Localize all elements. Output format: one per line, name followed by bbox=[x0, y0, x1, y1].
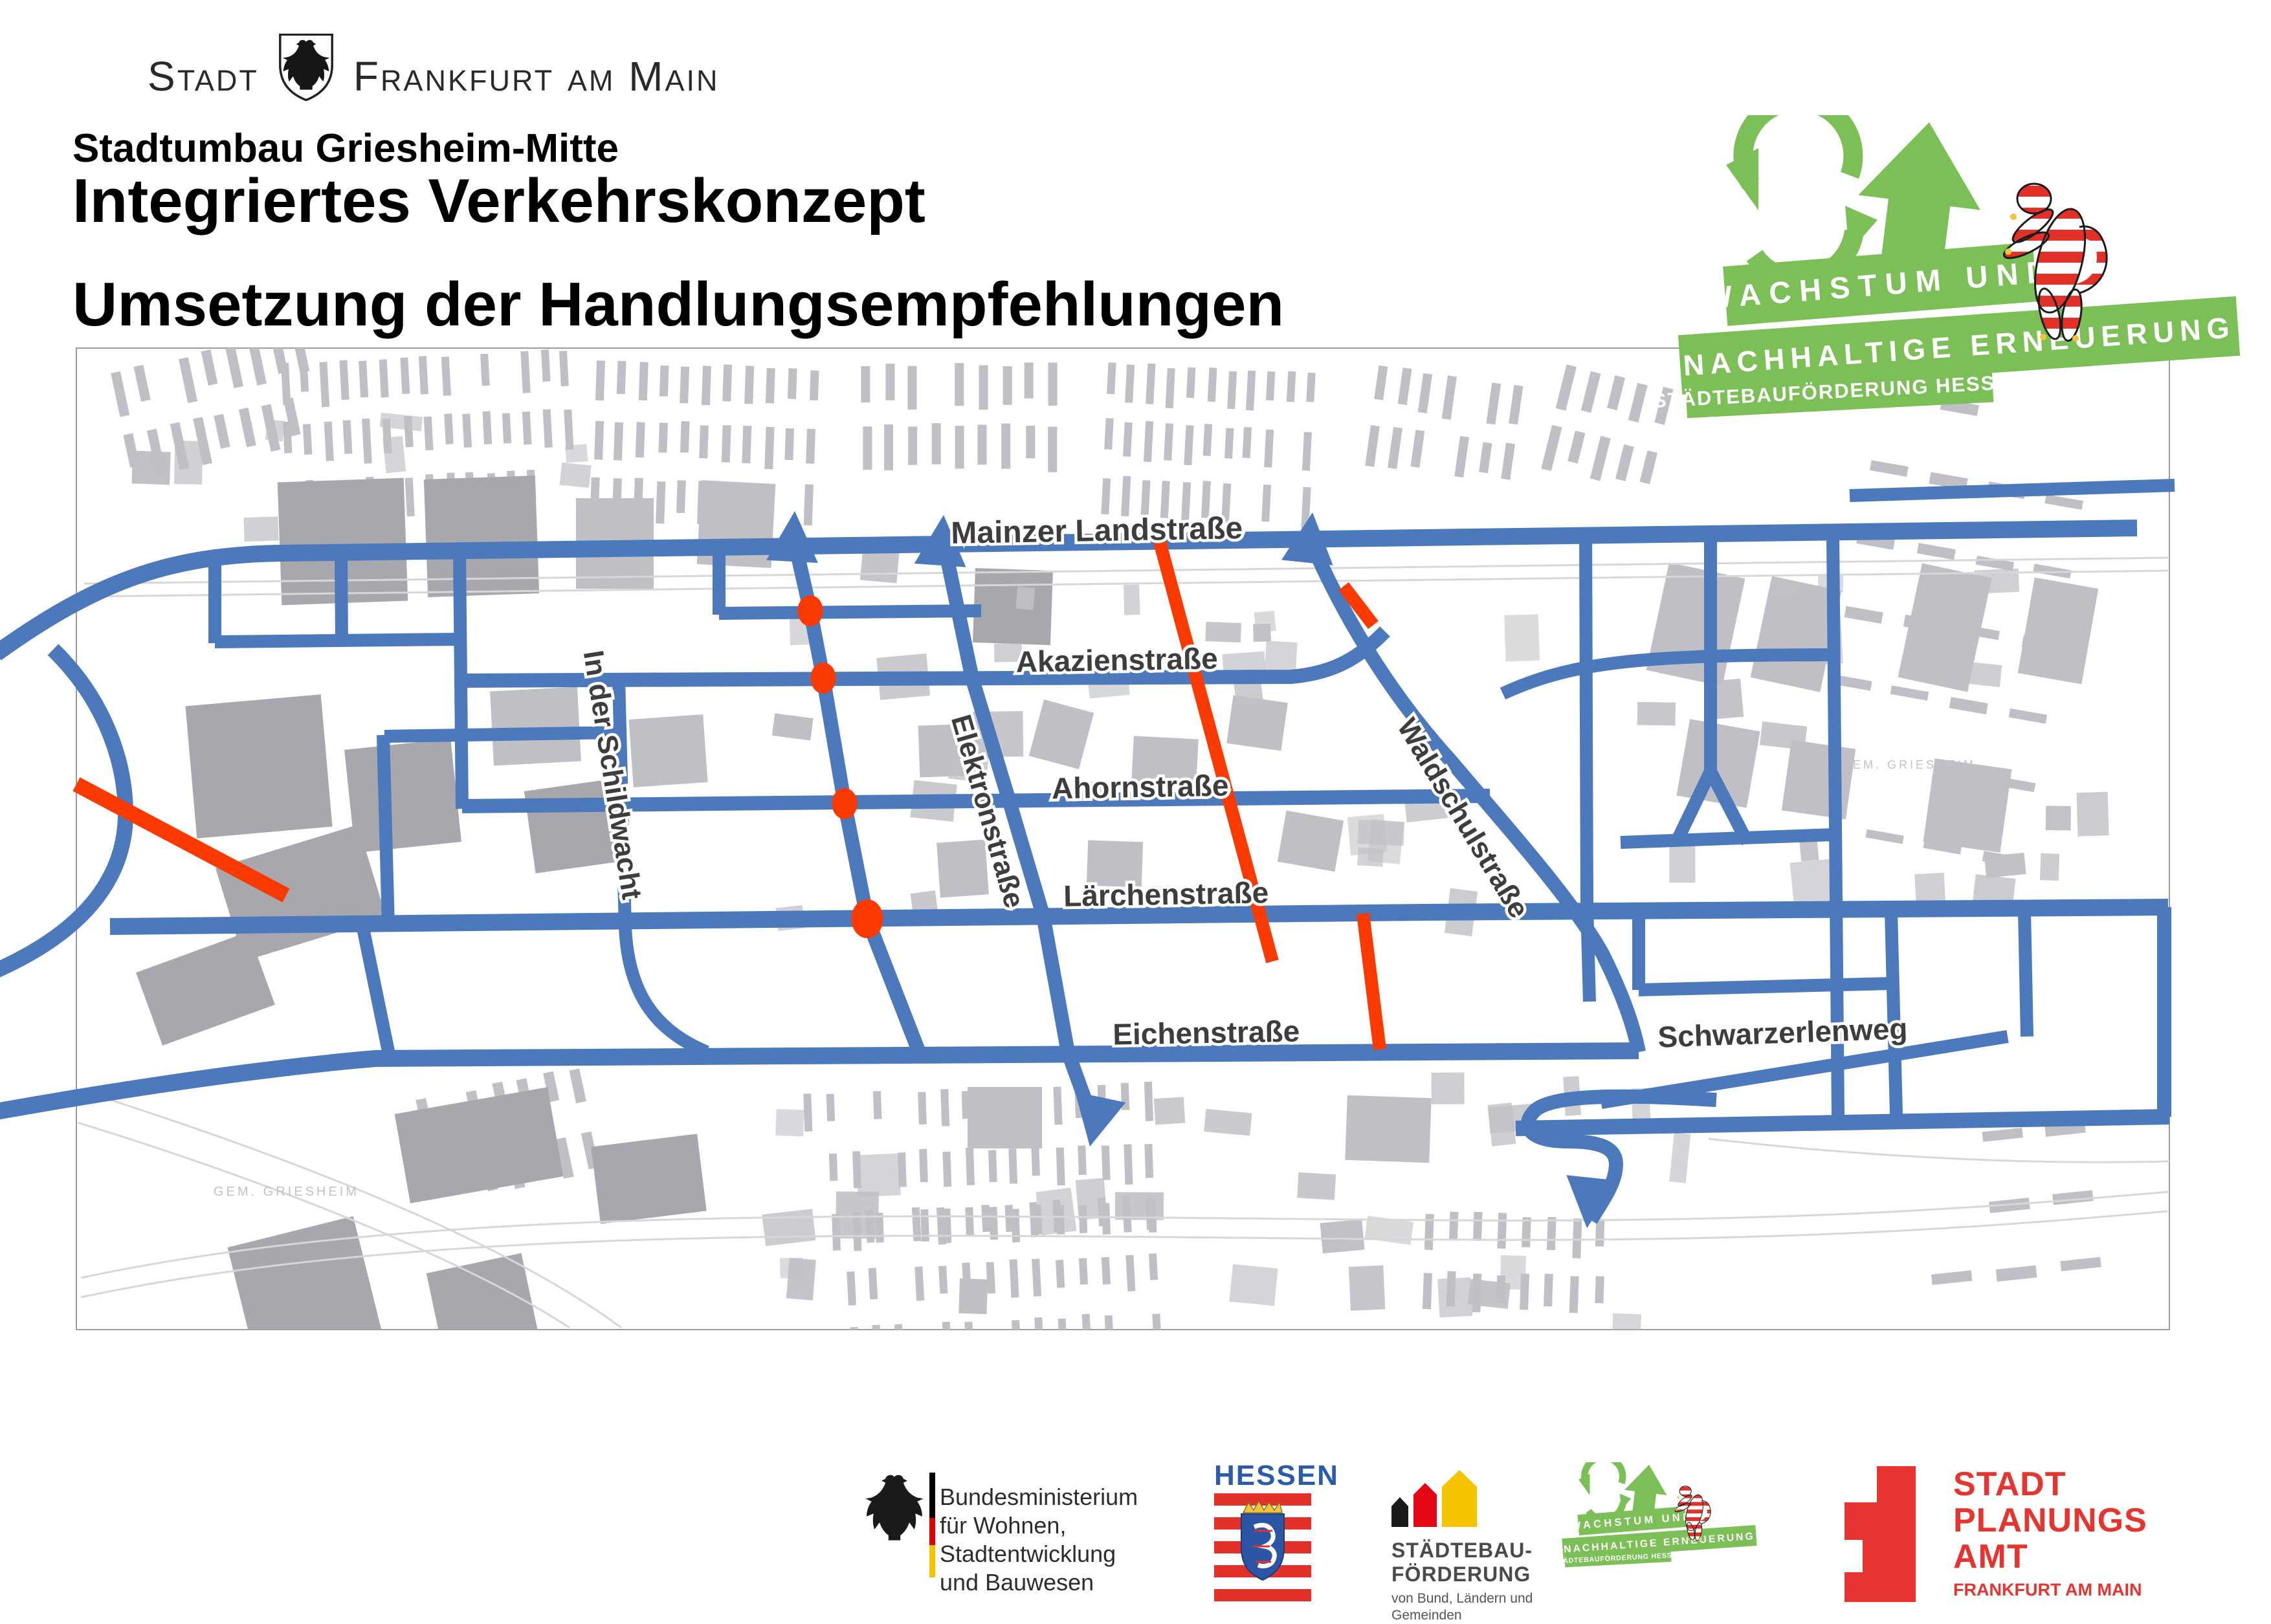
street-route bbox=[1639, 983, 1891, 990]
frankfurt-eagle-shield-icon bbox=[268, 34, 344, 101]
street-label: Mainzer Landstraße bbox=[951, 511, 1243, 551]
spa-text: STADT PLANUNGS AMT bbox=[1953, 1466, 2147, 1575]
recycle-arrows-icon bbox=[1726, 115, 1878, 279]
street-label: Lärchenstraße bbox=[1063, 875, 1269, 913]
street-route bbox=[1587, 908, 1590, 1002]
basemap-label: GEM. GRIESHEIM bbox=[214, 1185, 359, 1199]
poster-title2: Umsetzung der Handlungsempfehlungen bbox=[72, 269, 1284, 340]
spa-subtext: FRANKFURT AM MAIN bbox=[1953, 1580, 2142, 1600]
logo-staedtebaufoerderung: STÄDTEBAU- FÖRDERUNG von Bund, Ländern u… bbox=[1391, 1469, 1560, 1618]
hessen-wordmark: HESSEN bbox=[1214, 1460, 1311, 1492]
street-route bbox=[719, 611, 981, 613]
poster-subtitle: Stadtumbau Griesheim-Mitte bbox=[72, 126, 619, 171]
logo-bundesministerium: Bundesministerium für Wohnen, Stadtentwi… bbox=[865, 1469, 1201, 1605]
street-route bbox=[2024, 911, 2027, 1037]
flag-gold bbox=[929, 1545, 935, 1577]
stb-subtext: von Bund, Ländern und Gemeinden bbox=[1391, 1590, 1533, 1624]
three-houses-icon bbox=[1391, 1469, 1482, 1527]
city-logo-stadt: Stadt bbox=[148, 56, 259, 97]
street-label: Eichenstraße bbox=[1113, 1014, 1300, 1051]
measure-dot bbox=[797, 595, 823, 626]
city-logo: Stadt Frankfurt am Main bbox=[148, 34, 720, 97]
flag-black bbox=[929, 1473, 935, 1518]
poster-title: Integriertes Verkehrskonzept bbox=[72, 166, 925, 237]
street-label: Ahornstraße bbox=[1052, 769, 1229, 806]
measure-dot bbox=[832, 788, 857, 819]
stb-text: STÄDTEBAU- FÖRDERUNG bbox=[1391, 1539, 1533, 1586]
spa-glyph-icon bbox=[1824, 1466, 1931, 1602]
growth-logo-large: WACHSTUM UND NACHHALTIGE ERNEUERUNG STÄD… bbox=[1654, 115, 2268, 419]
bm-text: Bundesministerium für Wohnen, Stadtentwi… bbox=[940, 1483, 1201, 1597]
street-route bbox=[383, 735, 388, 925]
growth-logo-small bbox=[1553, 1462, 1767, 1568]
street-route bbox=[1621, 835, 1833, 842]
hessen-coat-of-arms-icon bbox=[1214, 1493, 1311, 1602]
street-route bbox=[1586, 529, 1587, 908]
measure-dot bbox=[810, 663, 836, 694]
logo-stadtplanungsamt: STADT PLANUNGS AMT FRANKFURT AM MAIN bbox=[1824, 1466, 2160, 1608]
street-route bbox=[215, 639, 461, 642]
basemap-label: GEM. GRIESHEIM bbox=[1841, 758, 1976, 771]
street-route bbox=[341, 554, 342, 643]
city-logo-frankfurt: Frankfurt am Main bbox=[353, 56, 720, 97]
flag-red bbox=[929, 1518, 935, 1545]
federal-eagle-icon bbox=[865, 1473, 924, 1542]
street-label: Akazienstraße bbox=[1015, 641, 1218, 678]
footer-logos: Bundesministerium für Wohnen, Stadtentwi… bbox=[0, 1456, 2271, 1605]
street-route bbox=[384, 732, 621, 736]
logo-hessen: HESSEN bbox=[1214, 1460, 1311, 1602]
poster-page: { "header": { "city_logo": { "stadt": "S… bbox=[0, 0, 2271, 1605]
measure-dot bbox=[851, 899, 883, 938]
